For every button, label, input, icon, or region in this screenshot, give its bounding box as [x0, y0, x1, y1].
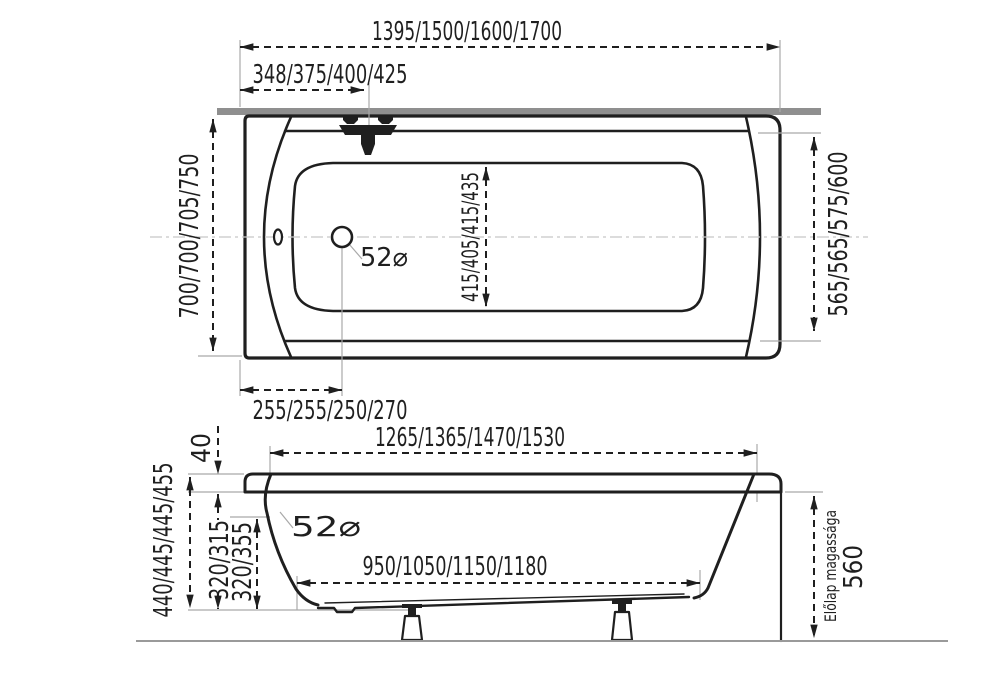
drain-diameter-label: 52⌀: [360, 243, 408, 273]
dim-basin-width-label: 415/405/415/435: [459, 172, 484, 302]
dim-bottom-length: 950/1050/1150/1180: [297, 552, 700, 583]
drain-hole: [332, 227, 352, 247]
bathtub-technical-drawing: 1395/1500/1600/1700 348/375/400/425 700/…: [0, 0, 990, 675]
rim-profile: [245, 474, 781, 492]
overflow-diameter-label: 52⌀: [291, 510, 361, 543]
dim-rim-inner-length-label: 1265/1365/1470/1530: [375, 423, 565, 453]
dim-drain-offset-label: 255/255/250/270: [253, 396, 408, 426]
dim-overall-height-label: 440/445/445/455: [149, 463, 179, 618]
dim-rim-height-label: 40: [187, 433, 217, 463]
side-view: 1265/1365/1470/1530 950/1050/1150/1180 4…: [136, 423, 948, 641]
foot-right: [612, 600, 632, 640]
dim-depth-b-label: 320/355: [228, 522, 258, 602]
wall-bar: [217, 108, 821, 115]
overflow-hole: [274, 230, 282, 245]
dim-overall-length-label: 1395/1500/1600/1700: [372, 17, 562, 47]
dim-bottom-length-label: 950/1050/1150/1180: [363, 552, 548, 582]
dim-overflow-offset-label: 348/375/400/425: [253, 60, 408, 90]
dim-inner-width: 565/565/575/600: [814, 137, 854, 331]
dim-overall-length: 1395/1500/1600/1700: [240, 17, 780, 47]
front-panel-height-label: 560: [839, 545, 869, 589]
extension-lines-side-view: [188, 444, 823, 610]
drawing-canvas: 1395/1500/1600/1700 348/375/400/425 700/…: [0, 0, 990, 675]
top-view: 1395/1500/1600/1700 348/375/400/425 700/…: [150, 17, 868, 426]
dim-overall-width: 700/700/705/750: [175, 119, 213, 351]
dim-overall-height: 440/445/445/455: [149, 463, 190, 618]
front-panel-caption: Előlap magassága: [821, 510, 840, 622]
dim-overall-width-label: 700/700/705/750: [175, 154, 205, 319]
dim-inner-width-label: 565/565/575/600: [824, 152, 854, 317]
dim-overflow-offset: 348/375/400/425: [240, 60, 408, 90]
dim-front-panel-height: Előlap magassága 560: [814, 496, 869, 638]
dim-drain-offset: 255/255/250/270: [240, 390, 408, 426]
dim-basin-width: 415/405/415/435: [459, 167, 486, 307]
dim-rim-inner-length: 1265/1365/1470/1530: [270, 423, 757, 453]
dim-depth-b: 320/355: [228, 519, 258, 609]
